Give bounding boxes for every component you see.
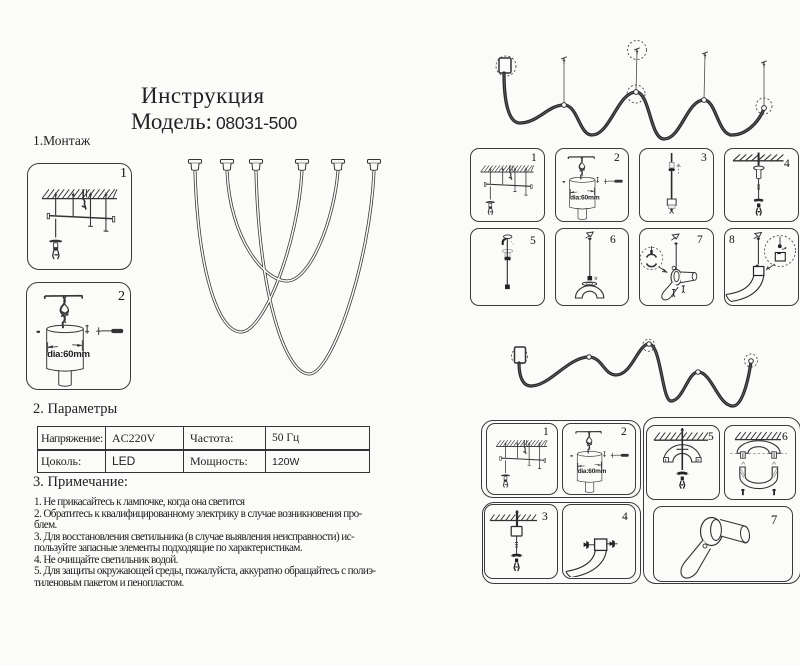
svg-text:dia:60mm: dia:60mm xyxy=(570,194,600,201)
svg-text:dia:60mm: dia:60mm xyxy=(578,468,607,475)
svg-text:dia:60mm: dia:60mm xyxy=(47,349,90,360)
